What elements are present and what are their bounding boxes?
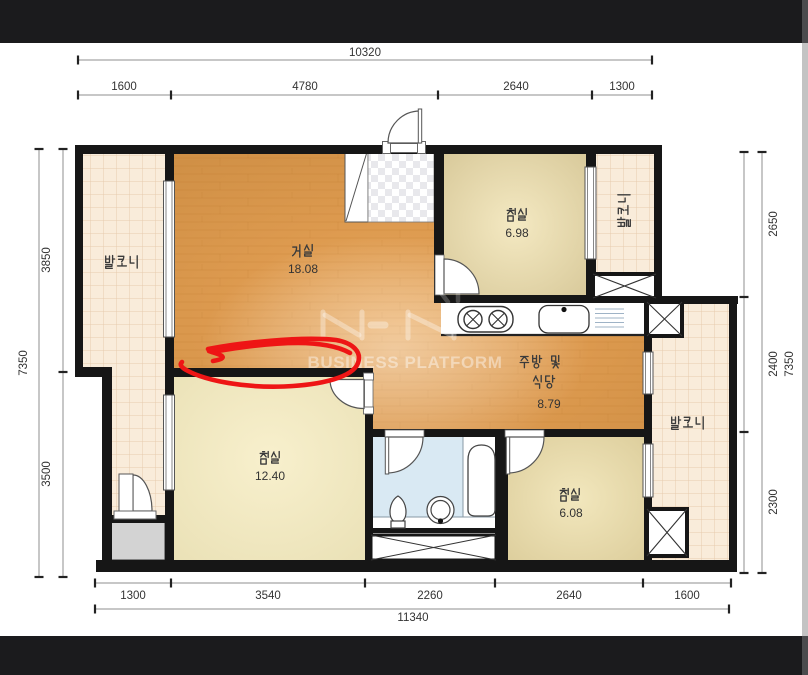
svg-text:2640: 2640 (556, 590, 582, 602)
svg-text:4780: 4780 (292, 81, 318, 93)
svg-text:2260: 2260 (417, 590, 443, 602)
svg-text:1600: 1600 (111, 81, 137, 93)
svg-text:8.79: 8.79 (537, 397, 561, 411)
svg-text:6.98: 6.98 (505, 226, 529, 240)
svg-text:2300: 2300 (768, 489, 780, 515)
svg-text:2640: 2640 (503, 81, 529, 93)
svg-text:2650: 2650 (768, 211, 780, 237)
svg-text:1600: 1600 (674, 590, 700, 602)
svg-text:2400: 2400 (768, 351, 780, 377)
svg-text:11340: 11340 (397, 612, 428, 624)
svg-text:7350: 7350 (18, 350, 30, 376)
svg-text:12.40: 12.40 (255, 469, 285, 483)
svg-text:6.08: 6.08 (559, 506, 583, 520)
svg-text:3540: 3540 (255, 590, 281, 602)
svg-text:7350: 7350 (784, 351, 796, 377)
svg-text:3500: 3500 (41, 461, 53, 487)
svg-text:1300: 1300 (120, 590, 146, 602)
svg-text:3850: 3850 (41, 247, 53, 273)
svg-text:BUSINESS PLATFORM: BUSINESS PLATFORM (307, 353, 502, 372)
svg-text:1300: 1300 (609, 81, 635, 93)
svg-text:10320: 10320 (349, 47, 381, 59)
svg-text:18.08: 18.08 (288, 262, 318, 276)
